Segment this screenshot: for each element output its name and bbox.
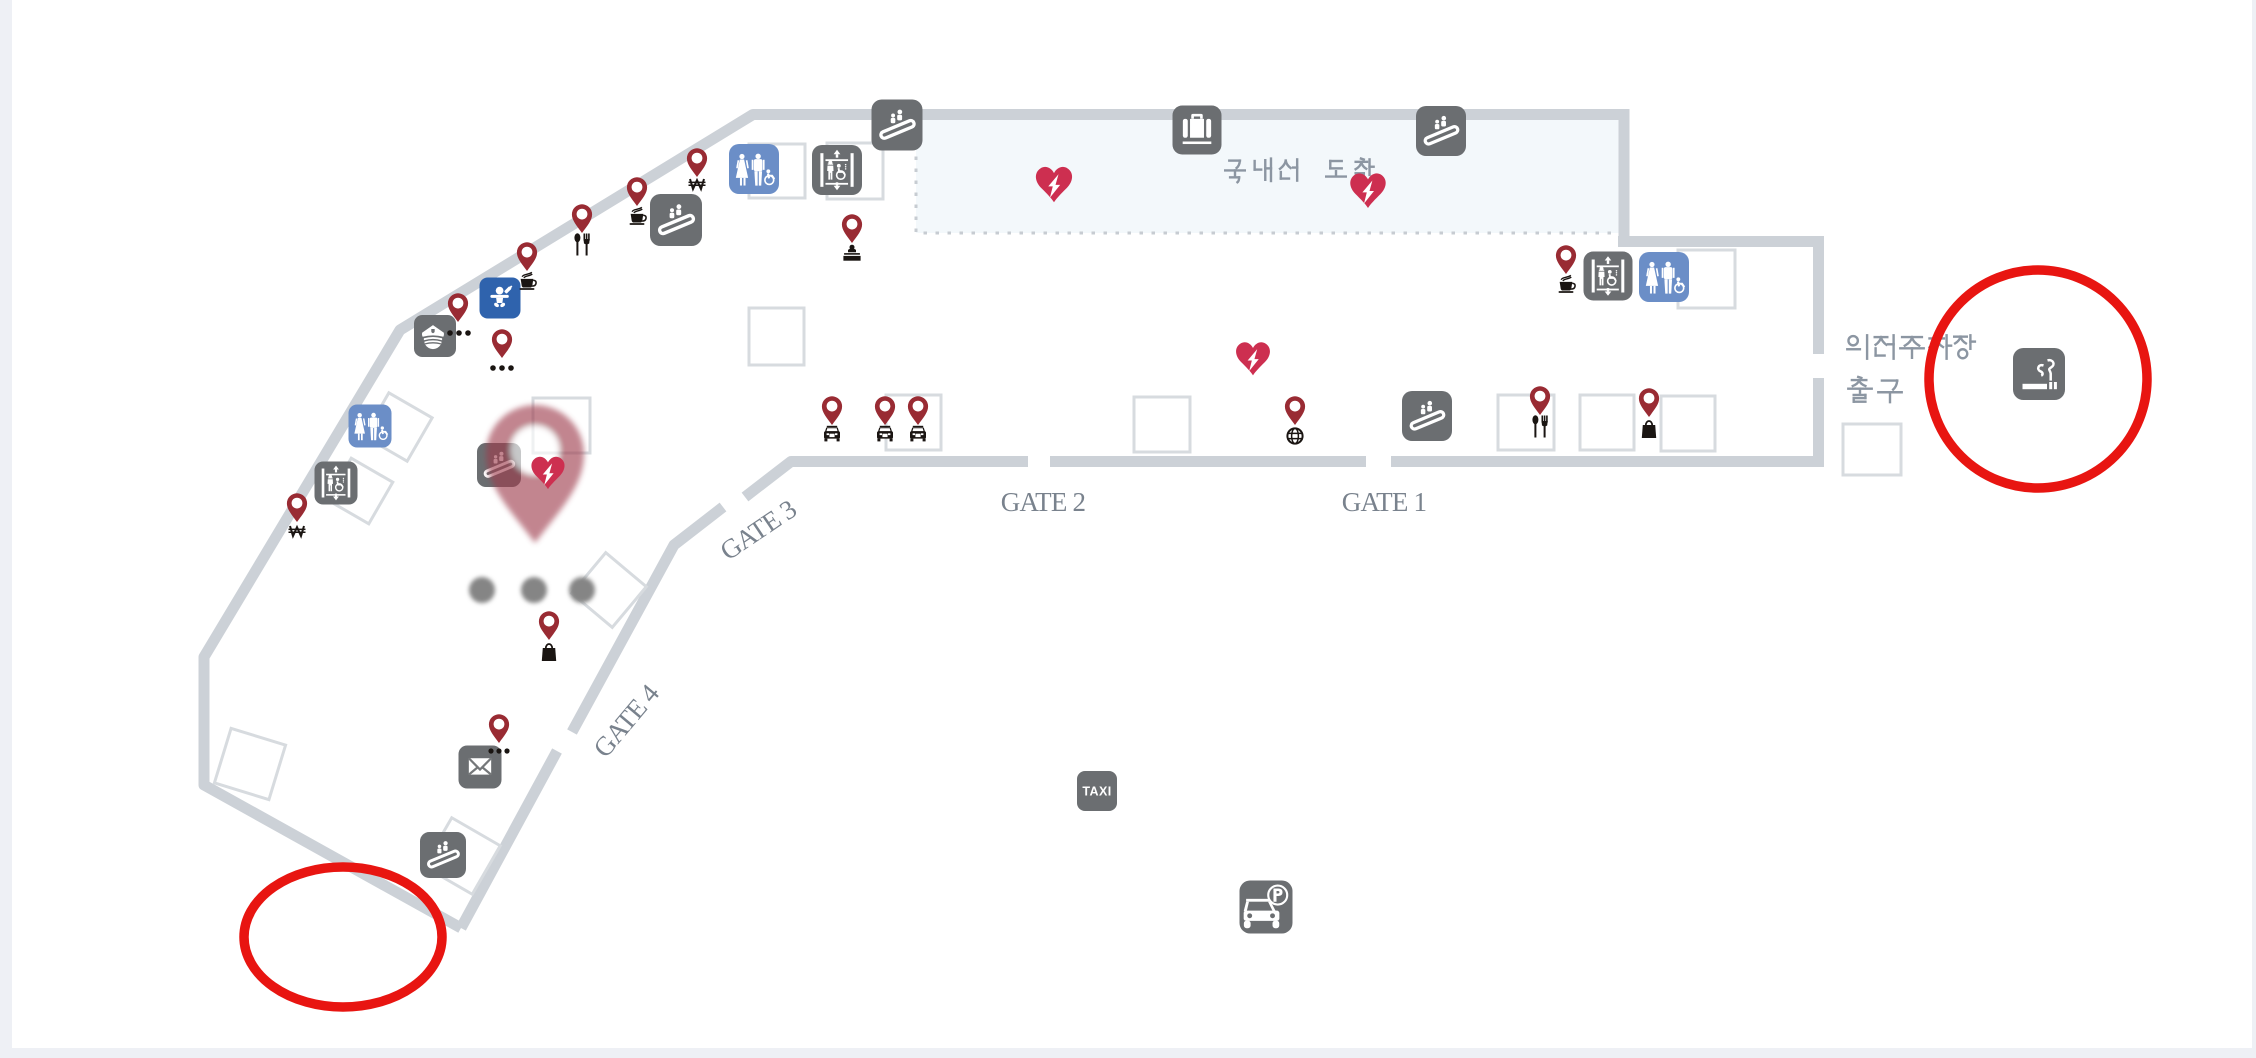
svg-text:GATE 1: GATE 1 [1342, 487, 1426, 517]
svg-text:TAXI: TAXI [1082, 785, 1111, 799]
svg-text:GATE 2: GATE 2 [1001, 487, 1086, 517]
svg-text:GATE 3: GATE 3 [715, 494, 802, 566]
